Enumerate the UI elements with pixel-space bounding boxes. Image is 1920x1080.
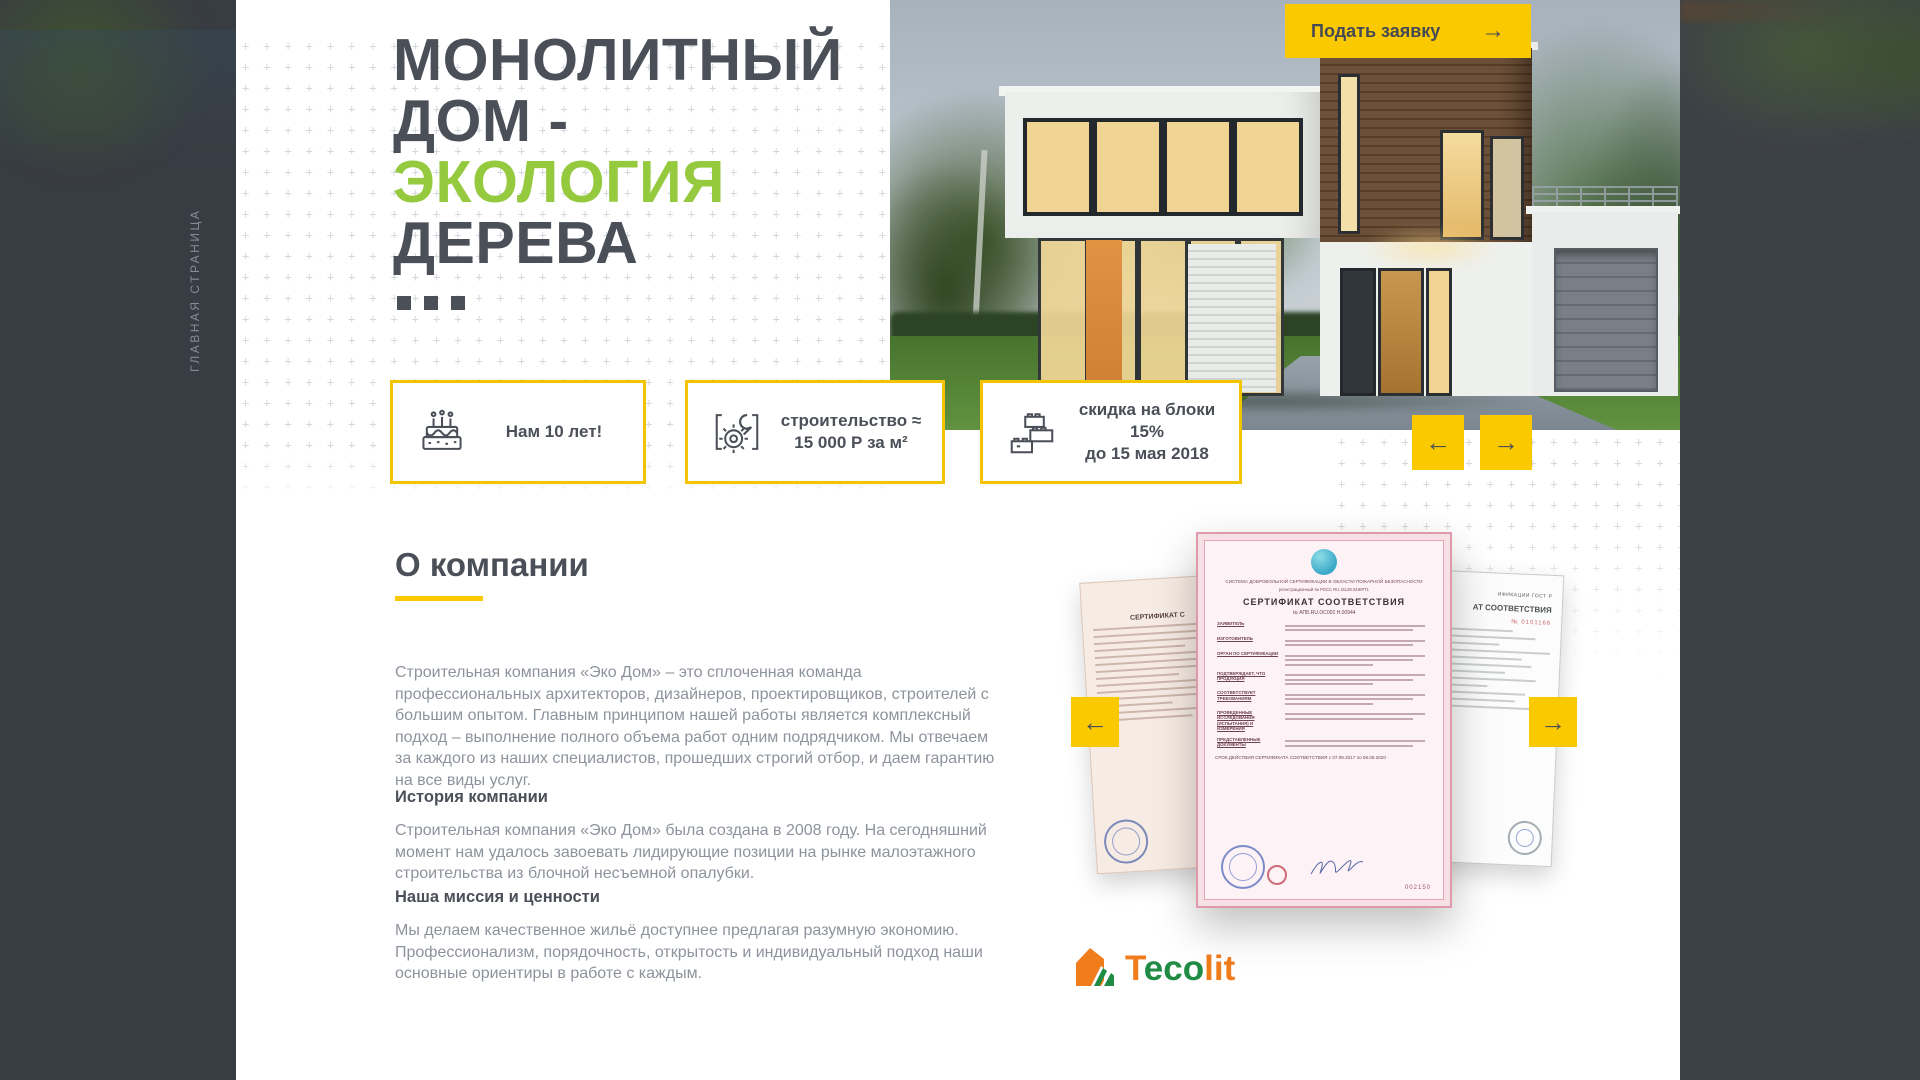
blocks-icon bbox=[1005, 405, 1059, 459]
hero-title-line1: МОНОЛИТНЫЙ bbox=[393, 30, 843, 91]
cake-icon bbox=[415, 405, 469, 459]
hero-title-line3: ЭКОЛОГИЯ bbox=[393, 152, 843, 213]
info-card-text: Нам 10 лет! bbox=[469, 421, 643, 443]
certificate-title: СЕРТИФИКАТ СООТВЕТСТВИЯ bbox=[1215, 597, 1433, 607]
landing-page: ГЛАВНАЯ СТРАНИЦА +++++++++++++++++++++++… bbox=[0, 0, 1920, 1080]
info-card-discount: скидка на блоки 15% до 15 мая 2018 bbox=[980, 380, 1242, 484]
left-background-margin bbox=[0, 0, 236, 1080]
history-paragraph: Строительная компания «Эко Дом» была соз… bbox=[395, 820, 1007, 885]
arrow-left-icon: ← bbox=[1425, 427, 1451, 458]
hero-title-line4: ДЕРЕВА bbox=[393, 213, 843, 274]
certificate-validity: СРОК ДЕЙСТВИЯ СЕРТИФИКАТА СООТВЕТСТВИЯ с… bbox=[1215, 755, 1433, 760]
certificates-carousel: СЕРТИФИКАТ С ИФИКАЦИИ ГОСТ Р АТ СООТВЕТС… bbox=[1076, 520, 1556, 920]
certificate-number: № АПБ.RU.ОС002.Н.00944 bbox=[1215, 610, 1433, 616]
hero-slider-prev-button[interactable]: ← bbox=[1412, 415, 1464, 470]
photo-overlay-decoration bbox=[0, 30, 236, 170]
submit-request-button[interactable]: Подать заявку → bbox=[1285, 4, 1531, 58]
mission-paragraph: Мы делаем качественное жильё доступнее п… bbox=[395, 920, 1007, 985]
about-section-title: О компании bbox=[395, 546, 589, 584]
tecolit-logo[interactable]: Tecolit bbox=[1073, 944, 1235, 993]
info-card-anniversary: Нам 10 лет! bbox=[390, 380, 646, 484]
tecolit-house-icon bbox=[1073, 944, 1119, 993]
info-card-price: строительство ≈ 15 000 Р за м² bbox=[685, 380, 945, 484]
about-intro-paragraph: Строительная компания «Эко Дом» – это сп… bbox=[395, 662, 1007, 791]
round-stamp bbox=[1221, 845, 1265, 889]
tools-icon bbox=[710, 405, 764, 459]
round-stamp-small bbox=[1267, 865, 1287, 885]
right-background-margin bbox=[1680, 0, 1920, 1080]
round-stamp bbox=[1507, 820, 1542, 855]
title-squares-decoration bbox=[397, 296, 465, 310]
info-card-text: скидка на блоки 15% до 15 мая 2018 bbox=[1059, 399, 1239, 465]
certificates-next-button[interactable]: → bbox=[1529, 697, 1577, 747]
arrow-right-icon: → bbox=[1540, 707, 1566, 738]
certificates-prev-button[interactable]: ← bbox=[1071, 697, 1119, 747]
submit-request-label: Подать заявку bbox=[1311, 21, 1440, 42]
page-content: ++++++++++++++++++++++++++++++++++++++++… bbox=[236, 0, 1680, 1080]
info-card-text: строительство ≈ 15 000 Р за м² bbox=[764, 410, 942, 454]
hologram-seal-icon bbox=[1311, 549, 1337, 575]
history-subheading: История компании bbox=[395, 788, 548, 807]
title-underline-decoration bbox=[395, 596, 483, 601]
hero-title-line2: ДОМ - bbox=[393, 91, 843, 152]
certificate-system-line: СИСТЕМА ДОБРОВОЛЬНОЙ СЕРТИФИКАЦИИ В ОБЛА… bbox=[1215, 579, 1433, 585]
hero-title: МОНОЛИТНЫЙ ДОМ - ЭКОЛОГИЯ ДЕРЕВА bbox=[393, 30, 843, 274]
roof-photo-decoration bbox=[1680, 0, 1850, 22]
certificate-center[interactable]: СИСТЕМА ДОБРОВОЛЬНОЙ СЕРТИФИКАЦИИ В ОБЛА… bbox=[1196, 532, 1452, 908]
mission-subheading: Наша миссия и ценности bbox=[395, 888, 600, 907]
arrow-right-icon: → bbox=[1493, 427, 1519, 458]
hero-house-photo bbox=[890, 0, 1680, 430]
breadcrumb-vertical-label: ГЛАВНАЯ СТРАНИЦА bbox=[188, 222, 202, 372]
arrow-left-icon: ← bbox=[1082, 707, 1108, 738]
arrow-right-icon: → bbox=[1481, 17, 1505, 45]
signature bbox=[1307, 854, 1387, 881]
certificate-body: СИСТЕМА ДОБРОВОЛЬНОЙ СЕРТИФИКАЦИИ В ОБЛА… bbox=[1204, 540, 1444, 900]
certificate-serial: 002150 bbox=[1405, 885, 1431, 891]
round-stamp bbox=[1103, 818, 1150, 865]
certificate-reg-line: регистрационный № РОСС RU.31136.04ЖРТ1 bbox=[1215, 587, 1433, 592]
tecolit-wordmark: Tecolit bbox=[1125, 947, 1235, 991]
hero-slider-next-button[interactable]: → bbox=[1480, 415, 1532, 470]
certificate-stamps: 002150 bbox=[1217, 839, 1431, 891]
